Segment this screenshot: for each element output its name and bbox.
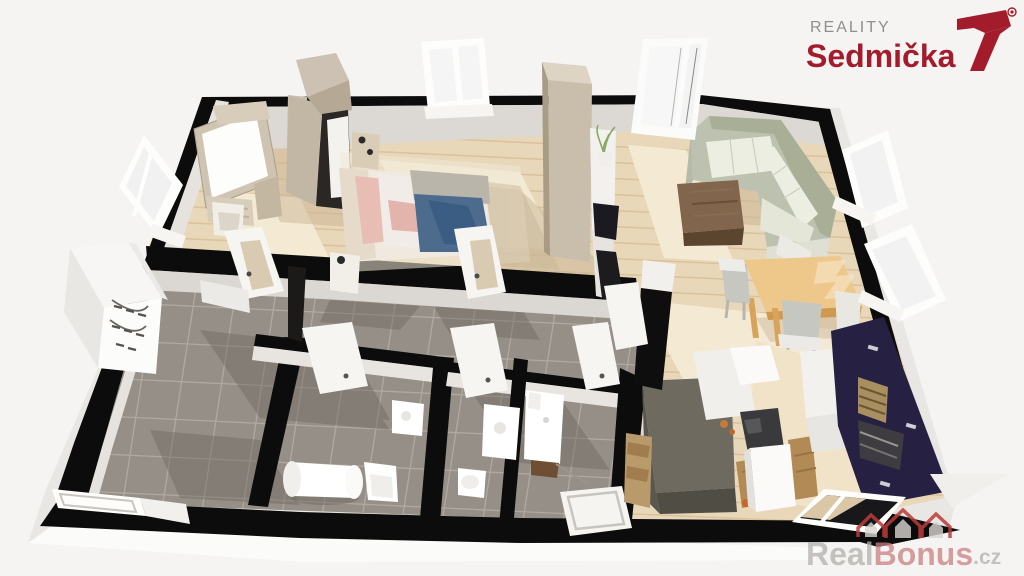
svg-text:RealBonus.cz: RealBonus.cz	[806, 536, 1001, 572]
svg-text:REALITY: REALITY	[810, 19, 891, 36]
svg-text:Sedmička: Sedmička	[806, 38, 956, 74]
